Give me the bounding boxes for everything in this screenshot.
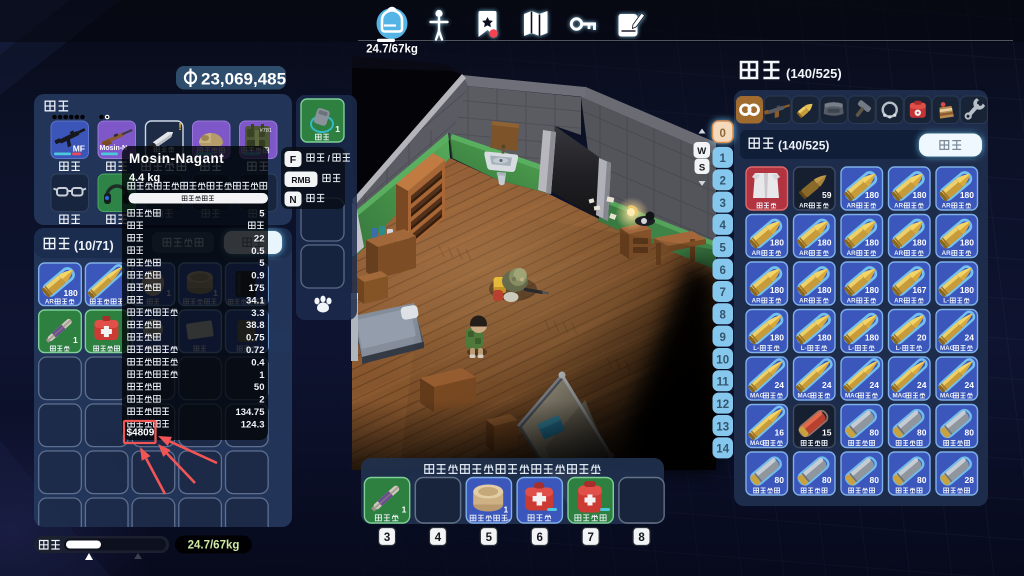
svg-text:5: 5 — [259, 209, 265, 220]
svg-text:24: 24 — [870, 380, 880, 390]
svg-text:1: 1 — [73, 335, 78, 345]
svg-text:!: ! — [178, 122, 181, 133]
svg-text:0.72: 0.72 — [246, 345, 265, 356]
svg-text:9: 9 — [719, 332, 725, 344]
svg-text:8: 8 — [719, 310, 726, 322]
svg-text:AR-: AR- — [799, 298, 810, 305]
svg-text:Mosin-Nagant: Mosin-Nagant — [129, 151, 224, 166]
svg-text:24: 24 — [775, 380, 785, 390]
svg-text:AR-: AR- — [799, 203, 810, 210]
svg-text:MAG-: MAG- — [750, 393, 767, 400]
svg-text:3: 3 — [384, 532, 390, 544]
svg-text:L-: L- — [943, 298, 949, 305]
svg-text:L-: L- — [848, 345, 854, 352]
svg-text:14: 14 — [716, 444, 729, 456]
svg-text:3.3: 3.3 — [251, 308, 264, 319]
svg-text:180: 180 — [64, 288, 78, 298]
svg-text:MAG-: MAG- — [940, 345, 957, 352]
svg-text:#781: #781 — [260, 128, 272, 134]
svg-text:AR-: AR- — [847, 203, 858, 210]
svg-text:12: 12 — [716, 399, 729, 411]
svg-text:AR-: AR- — [45, 299, 56, 306]
svg-text:1: 1 — [402, 505, 407, 515]
svg-text:MF: MF — [73, 144, 85, 154]
svg-text:134.75: 134.75 — [235, 407, 265, 418]
svg-text:80: 80 — [917, 428, 927, 438]
svg-text:..: .. — [506, 516, 510, 523]
svg-text:N: N — [289, 195, 296, 206]
svg-text:MAG-: MAG- — [893, 393, 910, 400]
svg-text:80: 80 — [775, 475, 785, 485]
svg-text:0.9: 0.9 — [251, 271, 264, 282]
svg-text:2: 2 — [719, 176, 725, 188]
svg-text:AR-: AR- — [942, 203, 953, 210]
svg-text:180: 180 — [770, 285, 784, 295]
svg-text:180: 180 — [817, 333, 831, 343]
svg-text:24: 24 — [822, 380, 832, 390]
svg-text:AR-: AR- — [847, 250, 858, 257]
svg-text:59: 59 — [822, 190, 832, 200]
svg-text:24: 24 — [965, 380, 975, 390]
svg-text:20: 20 — [917, 333, 927, 343]
svg-text:AR-: AR- — [752, 250, 763, 257]
svg-text:13: 13 — [716, 421, 729, 433]
svg-text:RMB: RMB — [291, 175, 310, 185]
svg-text:AR-: AR- — [894, 203, 905, 210]
svg-text:3: 3 — [719, 198, 725, 210]
svg-text:(140/525): (140/525) — [778, 139, 829, 153]
svg-text:10: 10 — [716, 354, 729, 366]
svg-text:180: 180 — [770, 238, 784, 248]
svg-text:180: 180 — [960, 285, 974, 295]
svg-text:8: 8 — [638, 532, 645, 544]
svg-text:6: 6 — [537, 532, 543, 544]
svg-text:80: 80 — [965, 428, 975, 438]
svg-text:124.3: 124.3 — [241, 419, 265, 430]
svg-text:180: 180 — [912, 190, 926, 200]
svg-text:0: 0 — [719, 128, 725, 140]
svg-text:AR-: AR- — [799, 250, 810, 257]
svg-text:15: 15 — [822, 428, 832, 438]
svg-text:38.8: 38.8 — [246, 320, 265, 331]
svg-text:AR-: AR- — [847, 298, 858, 305]
svg-text:80: 80 — [917, 475, 927, 485]
svg-text:5: 5 — [486, 532, 493, 544]
svg-text:MAG-: MAG- — [750, 440, 767, 447]
svg-text:11: 11 — [717, 377, 730, 389]
svg-text:F: F — [290, 154, 297, 166]
svg-text:5: 5 — [259, 258, 265, 269]
svg-text:0.75: 0.75 — [246, 333, 265, 344]
svg-text:(10/71): (10/71) — [74, 239, 114, 253]
svg-text:7: 7 — [719, 287, 725, 299]
svg-text:24: 24 — [917, 380, 927, 390]
svg-text:AR-: AR- — [752, 298, 763, 305]
svg-text:1: 1 — [719, 153, 726, 165]
svg-text:4: 4 — [719, 220, 726, 232]
svg-text:180: 180 — [960, 238, 974, 248]
svg-text:2: 2 — [259, 395, 264, 406]
svg-text:0.4: 0.4 — [251, 357, 265, 368]
svg-text:AR-: AR- — [942, 250, 953, 257]
svg-text:AR-: AR- — [894, 298, 905, 305]
svg-text:180: 180 — [865, 190, 879, 200]
svg-text:S: S — [699, 163, 705, 174]
svg-text:80: 80 — [870, 475, 880, 485]
svg-text:6: 6 — [719, 265, 725, 277]
svg-text:34.1: 34.1 — [246, 295, 265, 306]
svg-text:(140/525): (140/525) — [786, 66, 842, 81]
svg-text:7: 7 — [587, 532, 593, 544]
svg-text:MAG-: MAG- — [798, 393, 815, 400]
svg-text:180: 180 — [770, 333, 784, 343]
svg-text:4: 4 — [435, 532, 442, 544]
svg-text:MAG-: MAG- — [940, 393, 957, 400]
svg-text:23,069,485: 23,069,485 — [201, 70, 286, 89]
svg-text:24.7/67kg: 24.7/67kg — [366, 44, 418, 56]
svg-text:AR-: AR- — [894, 250, 905, 257]
svg-text:L-: L- — [801, 345, 807, 352]
svg-text:180: 180 — [912, 238, 926, 248]
svg-text:MAG-: MAG- — [845, 393, 862, 400]
svg-text:80: 80 — [870, 428, 880, 438]
svg-text:0.5: 0.5 — [251, 246, 265, 257]
svg-text:24: 24 — [965, 333, 975, 343]
svg-text:175: 175 — [249, 283, 266, 294]
svg-text:180: 180 — [865, 333, 879, 343]
svg-text:50: 50 — [254, 382, 265, 393]
svg-text:1: 1 — [259, 370, 265, 381]
svg-text:$4809: $4809 — [127, 428, 155, 439]
svg-text:180: 180 — [865, 238, 879, 248]
svg-text:180: 180 — [865, 285, 879, 295]
svg-text:1: 1 — [335, 124, 340, 134]
svg-text:1: 1 — [503, 505, 508, 515]
svg-text:28: 28 — [965, 475, 975, 485]
svg-text:W: W — [697, 146, 706, 157]
svg-text:180: 180 — [817, 285, 831, 295]
svg-text:24.7/67kg: 24.7/67kg — [188, 540, 240, 552]
svg-text:L-: L- — [753, 345, 759, 352]
svg-text:80: 80 — [822, 475, 832, 485]
svg-text:180: 180 — [817, 238, 831, 248]
svg-text:L-: L- — [896, 345, 902, 352]
svg-text:22: 22 — [254, 233, 265, 244]
svg-text:167: 167 — [912, 285, 926, 295]
svg-text:16: 16 — [775, 428, 785, 438]
svg-text:5: 5 — [719, 243, 726, 255]
svg-text:180: 180 — [960, 190, 974, 200]
